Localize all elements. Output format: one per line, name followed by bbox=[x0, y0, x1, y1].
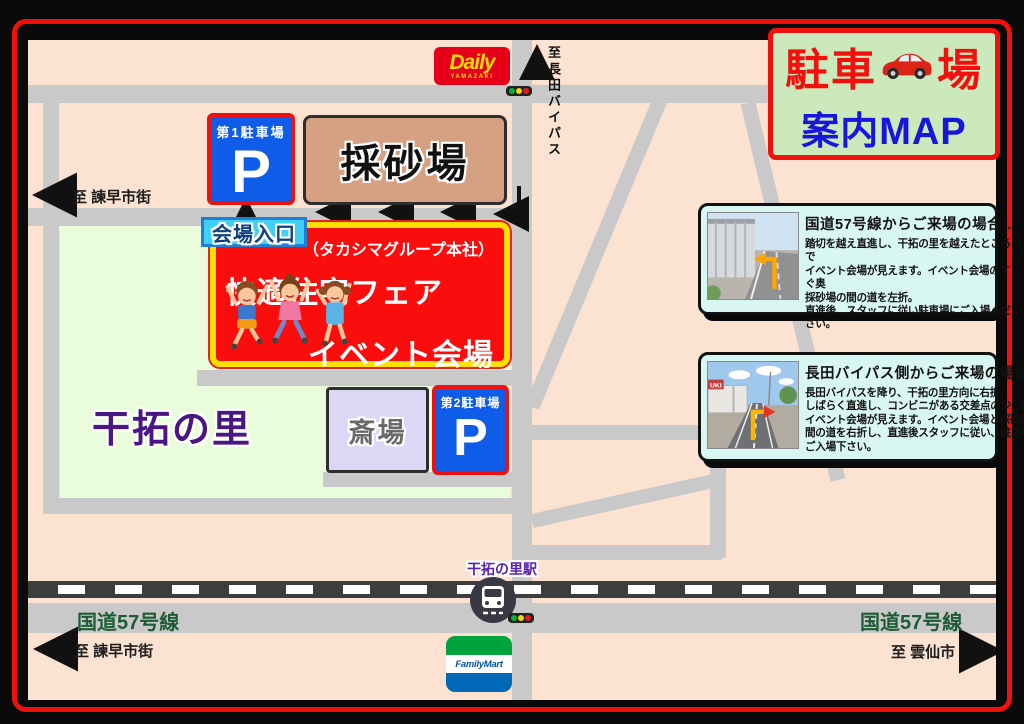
familymart-logo: FamilyMart bbox=[446, 636, 512, 692]
sand-pit-label: 採砂場 bbox=[341, 131, 470, 189]
road-diagonal-small bbox=[532, 480, 718, 521]
daily-logo-subtext: YAMAZAKI bbox=[450, 74, 493, 80]
panel2-title: 長田バイパス側からご来場の場合… bbox=[805, 362, 1024, 383]
parking2-p-icon: P bbox=[453, 412, 488, 464]
photo-sign-text: UKI bbox=[710, 382, 722, 389]
road-right-lower bbox=[532, 545, 722, 560]
route57-label-left: 国道57号線 bbox=[77, 606, 179, 635]
daily-yamazaki-logo: Daily YAMAZAKI bbox=[434, 47, 510, 85]
title-parking-left: 駐車 bbox=[785, 34, 877, 98]
road-green-bottom bbox=[43, 498, 532, 514]
street-photo-route57 bbox=[707, 212, 799, 300]
familymart-blue-bar bbox=[446, 673, 512, 692]
familymart-logo-text: FamilyMart bbox=[446, 655, 512, 673]
road-left-vertical bbox=[43, 85, 59, 512]
road-right-stub bbox=[532, 425, 700, 440]
label-to-nagata-bypass: 長田バイパス bbox=[544, 62, 563, 192]
panel1-title: 国道57号線からご来場の場合… bbox=[805, 213, 1017, 234]
parking1-sign: 第1駐車場 P bbox=[207, 113, 295, 205]
info-panel-route57: 国道57号線からご来場の場合… 踏切を越え直進し、干拓の里を越えたところで イベ… bbox=[698, 203, 998, 315]
funeral-hall-label: 斎場 bbox=[349, 411, 407, 450]
panel1-body: 踏切を越え直進し、干拓の里を越えたところで イベント会場が見えます。イベント会場… bbox=[805, 238, 1017, 332]
panel2-body: 長田バイパスを降り、干拓の里方向に右折。 しばらく直進し、コンビニがある交差点の… bbox=[805, 387, 1024, 454]
map-frame: 至 諫早市街 至 長田バイパス Daily YAMAZAKI 第1駐車場 P 採… bbox=[0, 0, 1024, 724]
label-to-isahaya-top: 至 諫早市街 bbox=[72, 186, 151, 207]
sand-pit-area: 採砂場 bbox=[303, 115, 507, 205]
venue-entrance-label: 会場入口 bbox=[212, 218, 296, 247]
map-title-box: 駐車 場 案内MAP bbox=[768, 28, 1000, 160]
funeral-hall-area: 斎場 bbox=[326, 387, 429, 473]
familymart-green-bar bbox=[446, 636, 512, 655]
title-parking-right: 場 bbox=[937, 34, 983, 98]
label-bypass-prefix: 至 bbox=[548, 42, 561, 61]
title-line2: 案内MAP bbox=[801, 100, 966, 155]
info-panel-bypass: UKI 長田バイパス側からご来場の場合… 長田バイパスを降り、干拓の里方向に右折… bbox=[698, 352, 998, 462]
jumping-kids-illustration bbox=[218, 273, 358, 363]
label-to-isahaya-bottom: 至 諫早市街 bbox=[74, 640, 153, 661]
title-line1: 駐車 場 bbox=[785, 34, 983, 98]
kantaku-no-sato-label: 干拓の里 bbox=[72, 398, 272, 453]
venue-entrance-tag: 会場入口 bbox=[201, 217, 307, 247]
parking2-sign: 第2駐車場 P bbox=[432, 385, 509, 475]
parking1-p-icon: P bbox=[231, 142, 271, 202]
street-photo-bypass: UKI bbox=[707, 361, 799, 449]
route57-label-right: 国道57号線 bbox=[860, 606, 962, 635]
label-to-unzen: 至 雲仙市 bbox=[891, 641, 955, 662]
traffic-light-bottom-icon bbox=[508, 613, 534, 623]
traffic-light-top-icon bbox=[506, 86, 532, 96]
car-icon bbox=[879, 50, 935, 82]
event-company-label: （タカシマグループ本社） bbox=[303, 236, 494, 260]
daily-logo-text: Daily bbox=[449, 52, 494, 73]
